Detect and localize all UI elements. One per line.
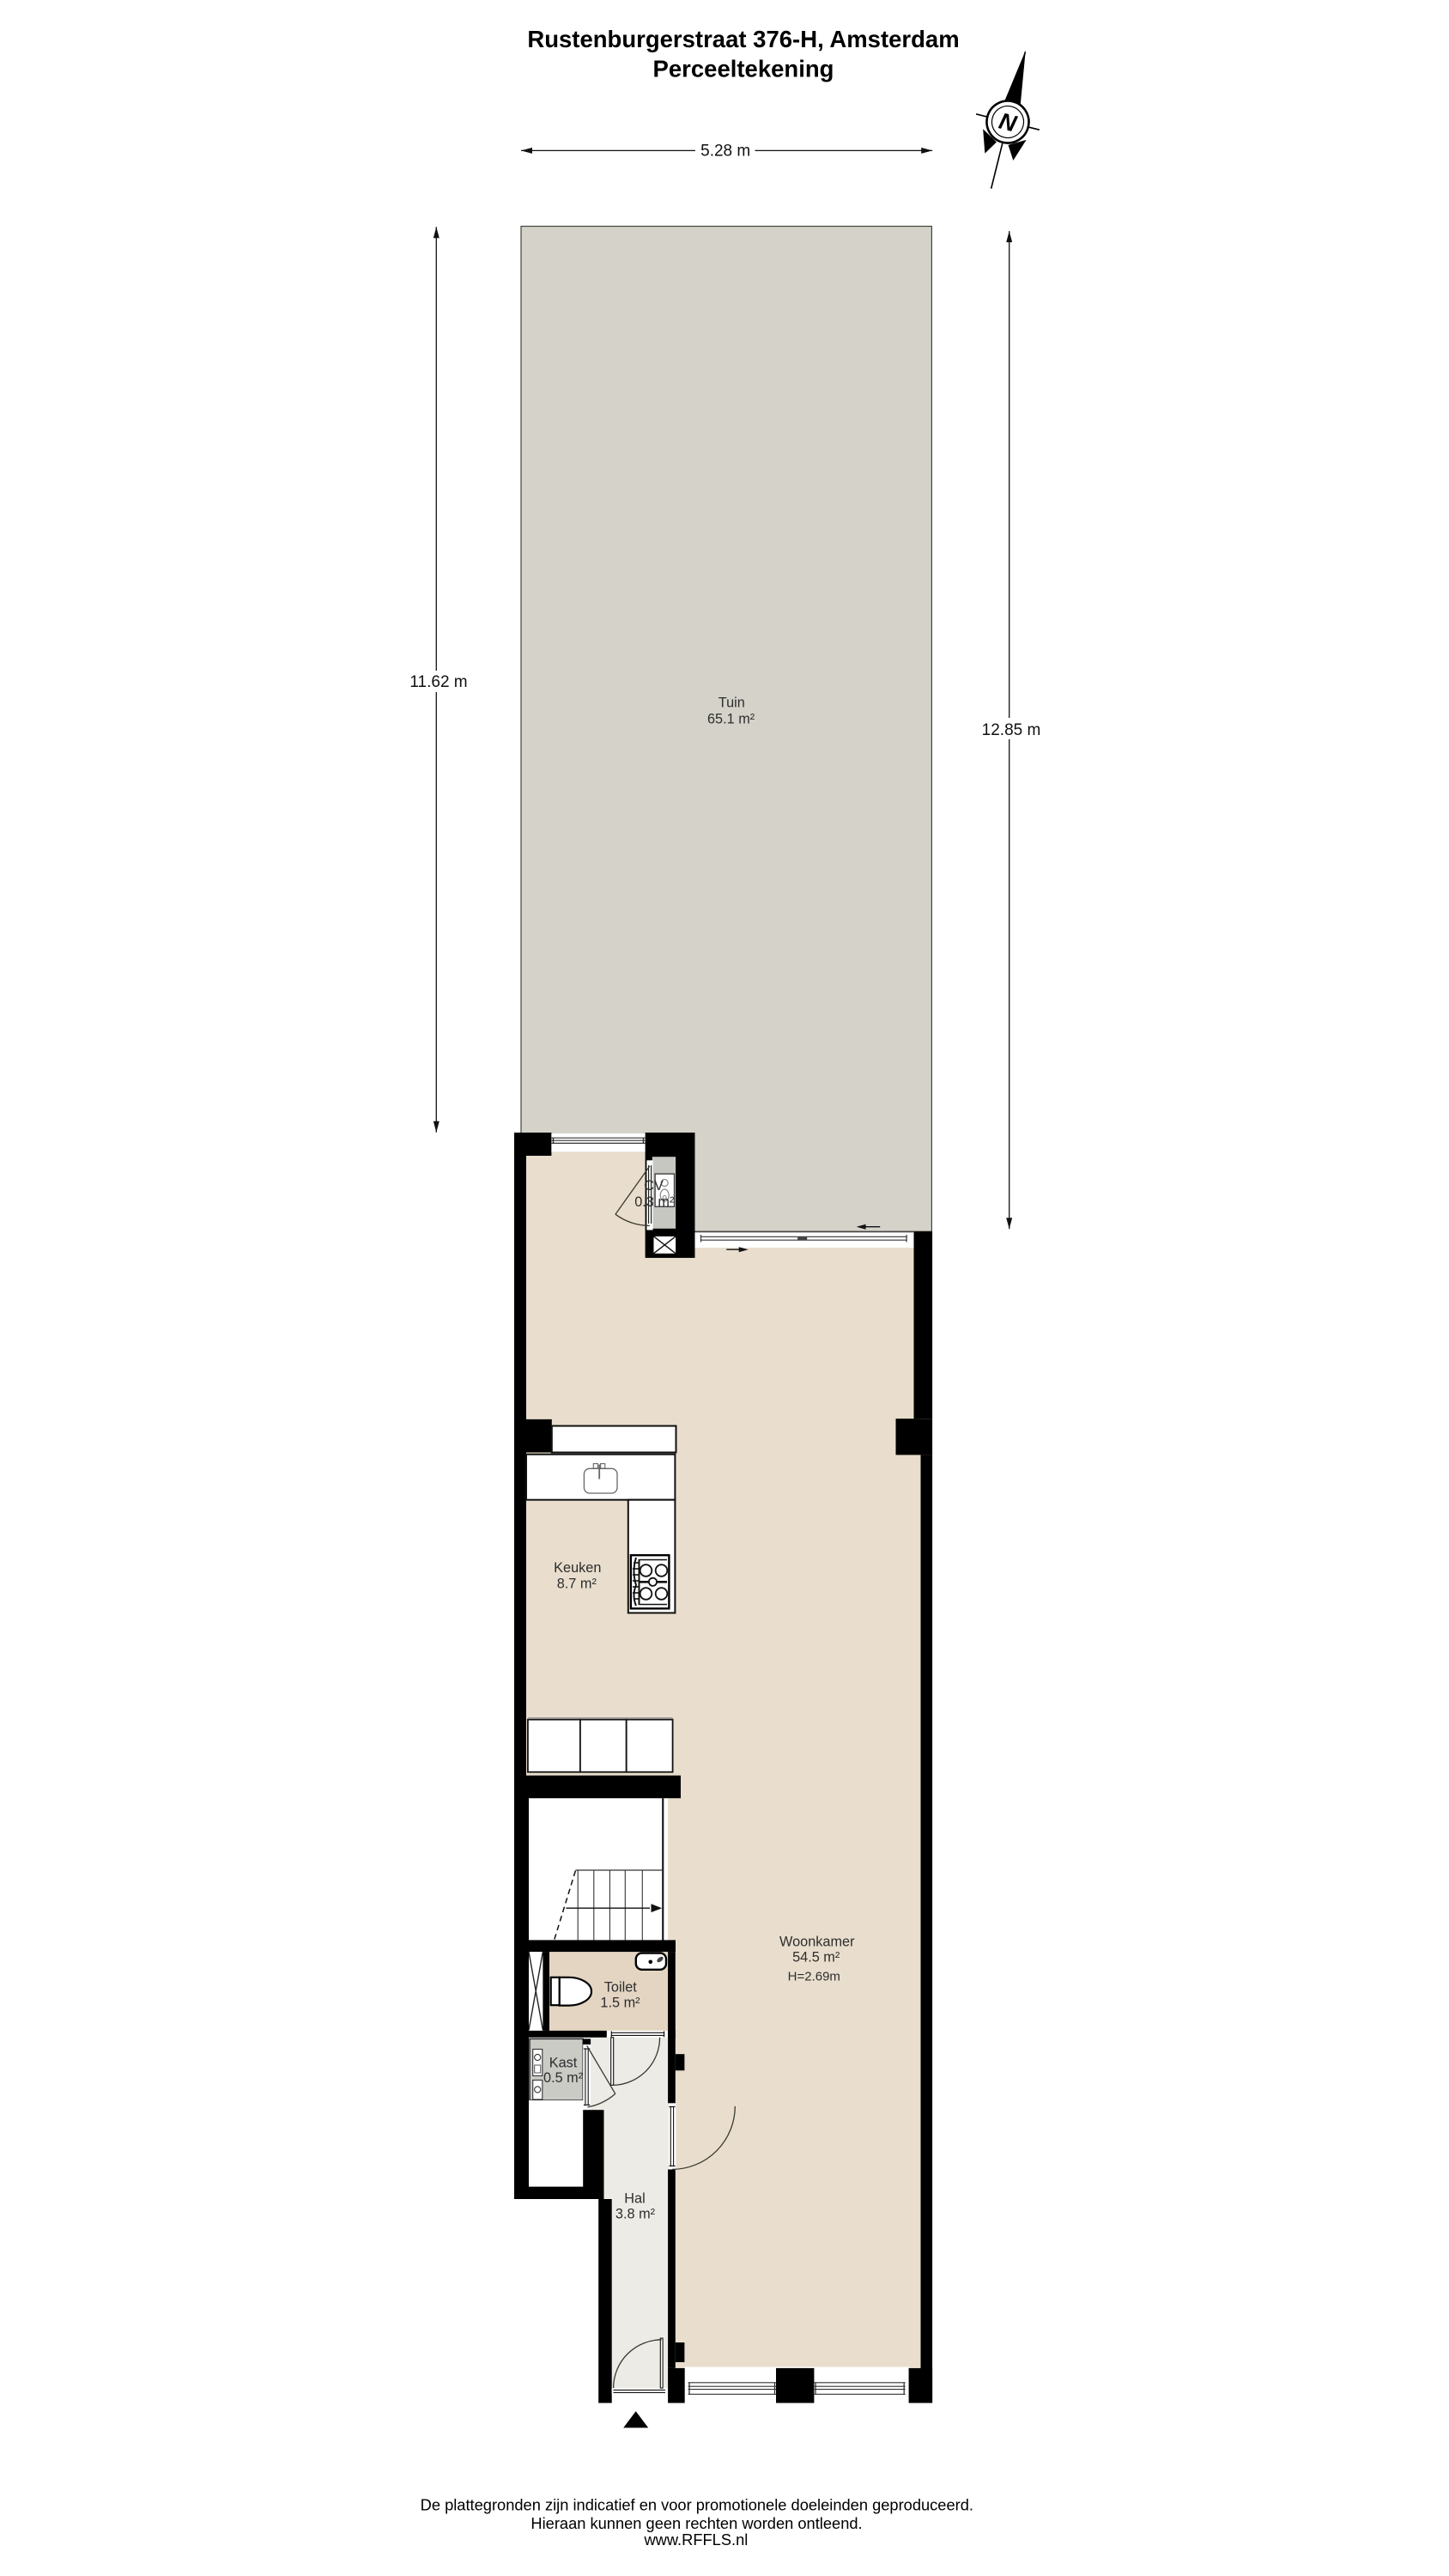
svg-text:Keuken: Keuken [554,1560,601,1576]
svg-text:Rustenburgerstraat 376-H, Amst: Rustenburgerstraat 376-H, Amsterdam [527,26,959,52]
svg-text:H=2.69m: H=2.69m [788,1970,840,1984]
svg-text:De plattegronden zijn indicati: De plattegronden zijn indicatief en voor… [421,2496,973,2514]
svg-text:65.1 m²: 65.1 m² [707,712,755,727]
svg-text:12.85 m: 12.85 m [982,721,1041,739]
svg-text:0.5 m²: 0.5 m² [543,2070,584,2086]
svg-text:8.7 m²: 8.7 m² [557,1576,597,1591]
svg-text:Kast: Kast [549,2056,578,2071]
svg-text:5.28 m: 5.28 m [700,142,750,160]
svg-text:CV: CV [644,1178,664,1194]
svg-text:Toilet: Toilet [604,1979,637,1995]
svg-text:Tuin: Tuin [718,696,745,711]
svg-text:Woonkamer: Woonkamer [779,1935,855,1950]
svg-text:Hal: Hal [624,2190,645,2206]
svg-text:www.RFFLS.nl: www.RFFLS.nl [643,2530,748,2549]
svg-text:0.3 m²: 0.3 m² [634,1194,675,1210]
svg-text:54.5 m²: 54.5 m² [792,1950,840,1965]
svg-text:1.5 m²: 1.5 m² [600,1995,640,2010]
svg-text:Perceeltekening: Perceeltekening [653,56,834,82]
svg-text:3.8 m²: 3.8 m² [615,2207,656,2222]
svg-text:11.62 m: 11.62 m [409,673,467,691]
